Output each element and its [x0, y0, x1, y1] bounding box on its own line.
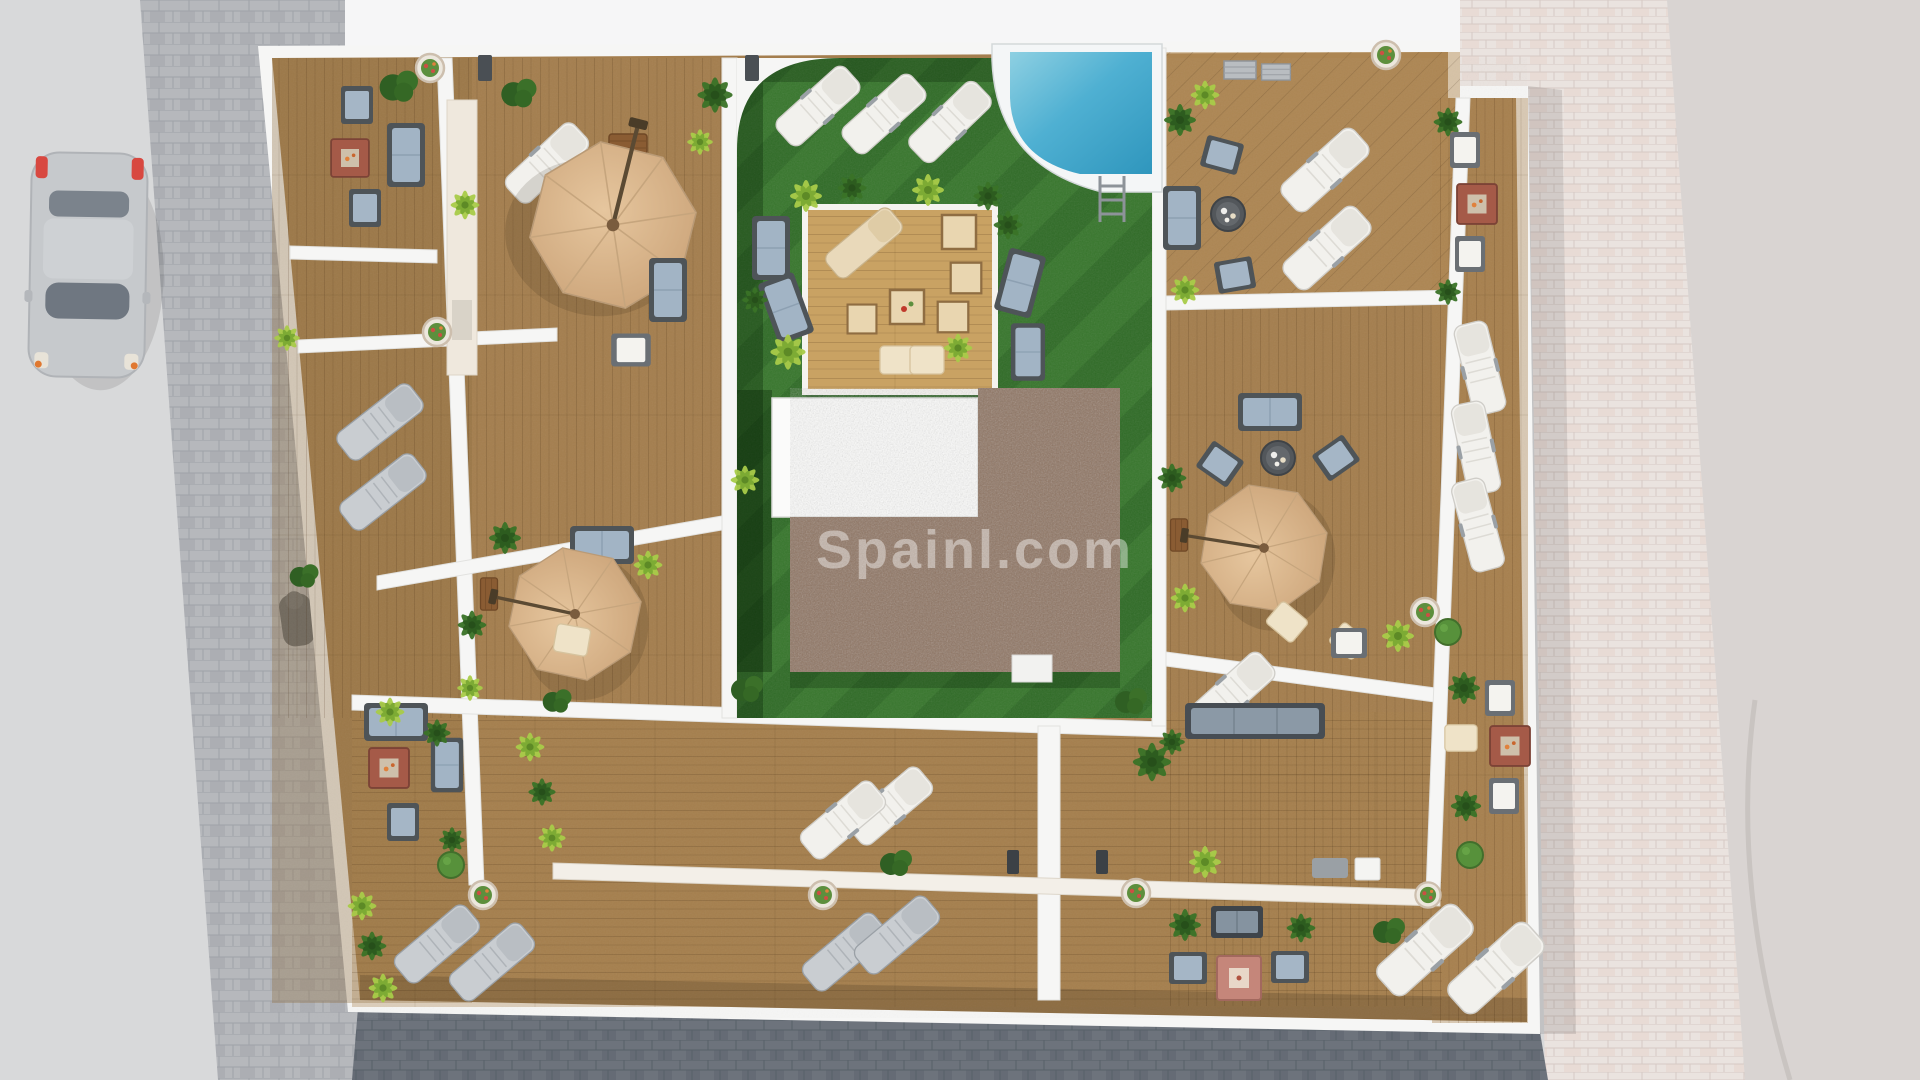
garden-sofa: [1163, 186, 1201, 250]
counter-box: [1355, 858, 1380, 880]
seat-cushion: [1445, 725, 1477, 752]
garden-sofa: [1211, 906, 1263, 938]
car-taillight: [131, 158, 143, 180]
counter-bench: [1312, 858, 1348, 878]
pergola-lounge-deck: [802, 204, 998, 395]
plant: [423, 719, 450, 746]
plant: [1158, 464, 1187, 493]
plant: [1448, 672, 1480, 704]
stairwell-roof: [772, 398, 978, 517]
plant: [1382, 620, 1414, 652]
armchair: [341, 86, 373, 124]
fire-table: [1457, 184, 1497, 224]
plant: [439, 827, 465, 853]
fire-table: [369, 748, 409, 788]
car-roof: [43, 218, 134, 280]
seat-cushion: [938, 302, 969, 333]
plant: [838, 174, 867, 203]
plant: [974, 182, 1003, 211]
plant: [731, 466, 760, 495]
plant: [358, 932, 387, 961]
plant: [742, 287, 768, 313]
garden-sofa: [1011, 323, 1045, 381]
low-table: [890, 290, 924, 324]
plant: [369, 974, 398, 1003]
wall-planter: [809, 881, 837, 909]
armchair: [1485, 680, 1515, 716]
wall-planter: [1372, 41, 1400, 69]
roof-edge-top: [345, 0, 1460, 46]
plant: [516, 733, 545, 762]
fire-table: [1217, 956, 1261, 1000]
bench-cushion: [910, 346, 944, 374]
plant: [1435, 279, 1461, 305]
plant: [376, 698, 405, 727]
plant: [790, 180, 822, 212]
watermark: Spainl.com: [816, 520, 1134, 580]
garden-sofa: [649, 258, 687, 322]
seat-cushion: [553, 623, 591, 656]
roof-vent: [1224, 61, 1256, 79]
armchair: [1455, 236, 1485, 272]
roof-hatch: [1012, 655, 1052, 682]
armchair: [611, 334, 651, 367]
plant: [458, 611, 487, 640]
armchair: [349, 189, 381, 227]
plant: [1164, 104, 1196, 136]
garden-sofa: [387, 123, 425, 187]
armchair: [1214, 256, 1257, 294]
wall-planter: [469, 881, 497, 909]
garden-sofa: [431, 738, 463, 792]
trash-bin: [745, 55, 759, 81]
plant: [634, 551, 663, 580]
garden-sofa: [1238, 393, 1302, 431]
stool: [1331, 628, 1367, 658]
rooftop-aerial-render: Spainl.com: [0, 0, 1920, 1080]
garden-sofa: [752, 216, 790, 280]
car-rear-window: [49, 190, 129, 217]
box-ball: [438, 852, 464, 878]
plant: [1169, 909, 1201, 941]
bench-cushion: [880, 346, 914, 374]
plant: [348, 892, 377, 921]
wall-courtyard-left: [722, 58, 737, 718]
plant: [489, 522, 521, 554]
plant: [1171, 276, 1200, 305]
plant: [944, 334, 973, 363]
plant: [1451, 791, 1481, 821]
box-ball: [1457, 842, 1483, 868]
fire-table: [331, 139, 369, 177]
armchair: [1169, 952, 1207, 984]
fire-table: [1490, 726, 1530, 766]
wall-planter: [416, 54, 444, 82]
parked-car: [23, 152, 166, 391]
plant: [697, 77, 732, 112]
plant: [457, 675, 483, 701]
plant: [1191, 81, 1220, 110]
seat-cushion: [951, 263, 982, 294]
render-viewport: Spainl.com: [0, 0, 1920, 1080]
trash-bin: [478, 55, 492, 81]
plant: [538, 824, 565, 851]
armchair: [387, 803, 419, 841]
plant: [1171, 584, 1200, 613]
car-taillight: [36, 156, 48, 178]
communal-courtyard: Spainl.com: [731, 44, 1162, 718]
plant: [770, 334, 805, 369]
coffee-table: [1261, 441, 1295, 475]
box-ball: [1435, 619, 1461, 645]
wall-planter: [1411, 598, 1439, 626]
plant: [994, 211, 1023, 240]
wall-post: [1096, 850, 1108, 874]
plant: [451, 191, 480, 220]
plant: [528, 778, 555, 805]
plant: [687, 129, 713, 155]
car-windshield: [45, 282, 130, 319]
armchair: [1489, 778, 1519, 814]
garden-sofa-long: [1185, 703, 1325, 739]
wall-planter: [1122, 879, 1150, 907]
seat-cushion: [848, 305, 877, 334]
roof-vent: [1262, 64, 1291, 80]
plant: [1159, 729, 1185, 755]
plant: [274, 325, 300, 351]
plant: [1189, 846, 1221, 878]
plant: [912, 174, 944, 206]
coffee-table: [1211, 197, 1245, 231]
counter-sink: [452, 300, 472, 340]
plant: [1287, 914, 1316, 943]
armchair: [1450, 132, 1480, 168]
seat-cushion: [942, 215, 976, 249]
armchair: [1271, 951, 1309, 983]
wall-planter: [1415, 882, 1440, 907]
wall-planter: [423, 318, 451, 346]
wall-post: [1007, 850, 1019, 874]
